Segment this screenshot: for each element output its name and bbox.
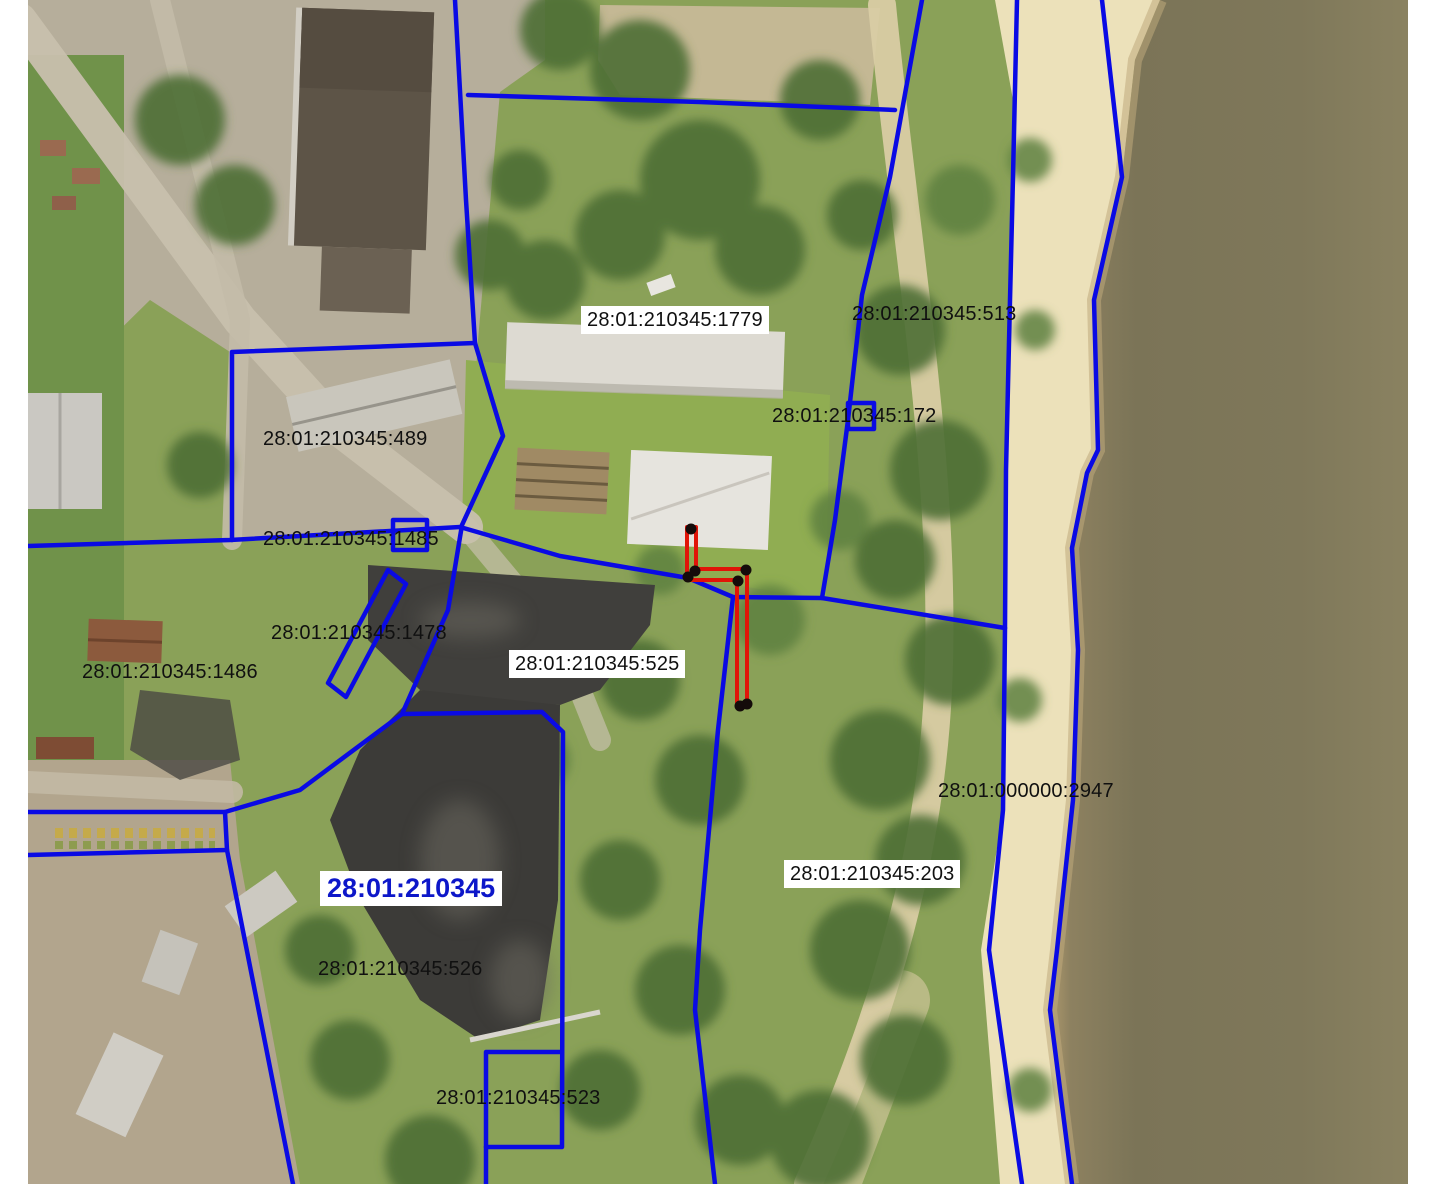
white-building-selected-area bbox=[627, 450, 772, 550]
map-canvas[interactable]: 28:01:210345:1779 28:01:210345:513 28:01… bbox=[0, 0, 1429, 1184]
left-margin bbox=[0, 0, 28, 1184]
brown-shed bbox=[36, 737, 94, 759]
left-warehouse bbox=[28, 393, 102, 509]
right-margin bbox=[1408, 0, 1429, 1184]
lumber-stacks bbox=[514, 448, 609, 515]
brown-roof-house bbox=[87, 619, 162, 664]
aerial-imagery bbox=[0, 0, 1429, 1184]
white-warehouse bbox=[505, 322, 785, 399]
